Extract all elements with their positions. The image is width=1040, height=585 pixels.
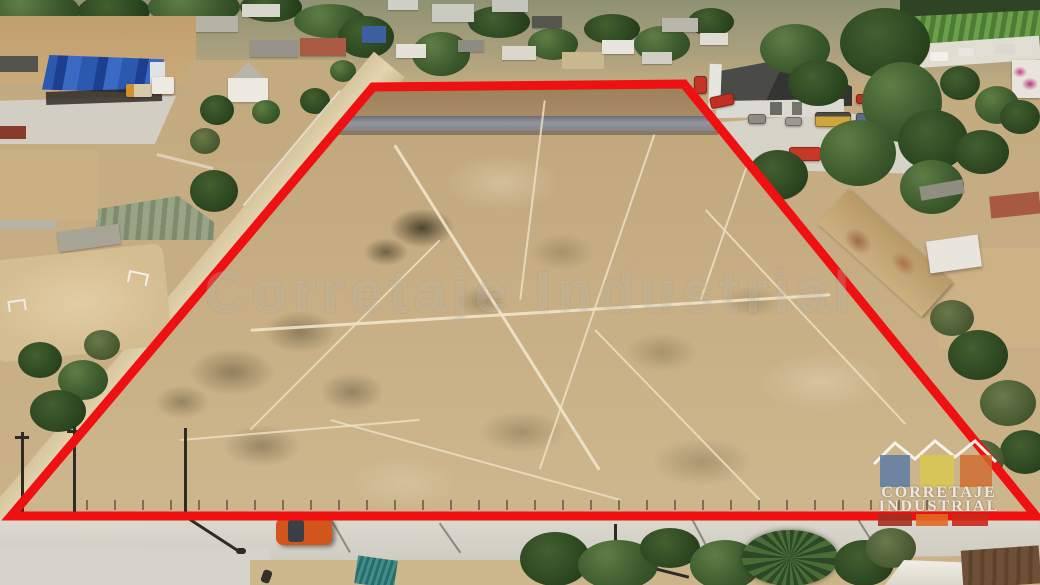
logo-square-yellow (920, 455, 954, 487)
logo-bar-red (952, 514, 988, 526)
logo-text-line2: INDUSTRIAL (868, 500, 1010, 514)
logo-bar-orange (916, 514, 948, 526)
aerial-photo: Corretaje Industrial CORRETAJE INDUSTRIA… (0, 0, 1040, 585)
logo-bar-darkred (878, 514, 912, 526)
logo-square-blue (880, 455, 910, 487)
brand-logo: CORRETAJE INDUSTRIAL (868, 436, 1010, 532)
logo-square-orange (960, 455, 992, 487)
